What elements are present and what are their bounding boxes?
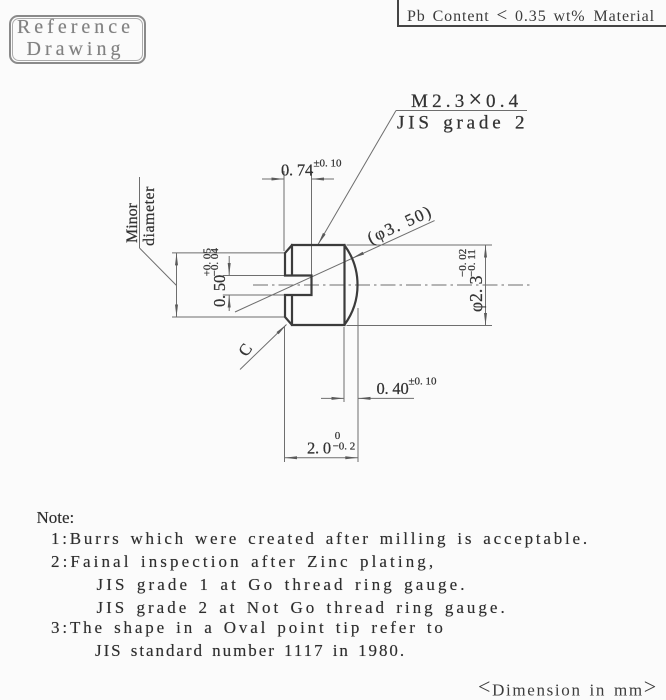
svg-text:JIS grade 2: JIS grade 2	[397, 113, 528, 134]
svg-text:M2.3×0.4: M2.3×0.4	[411, 87, 522, 113]
svg-text:Minor: Minor	[124, 202, 141, 243]
svg-text:−0. 04: −0. 04	[209, 248, 221, 277]
svg-text:−0. 11: −0. 11	[466, 249, 478, 277]
svg-text:diameter: diameter	[141, 186, 158, 246]
svg-text:φ2. 3: φ2. 3	[466, 275, 486, 312]
svg-text:−0. 2: −0. 2	[333, 441, 356, 453]
svg-text:0. 74: 0. 74	[281, 161, 313, 180]
svg-text:±0. 10: ±0. 10	[409, 376, 438, 388]
svg-text:±0. 10: ±0. 10	[314, 158, 343, 170]
svg-text:(φ3. 50): (φ3. 50)	[364, 201, 435, 247]
svg-text:2. 0: 2. 0	[307, 439, 331, 458]
svg-text:0. 50: 0. 50	[210, 275, 229, 307]
svg-text:0. 40: 0. 40	[377, 379, 409, 398]
